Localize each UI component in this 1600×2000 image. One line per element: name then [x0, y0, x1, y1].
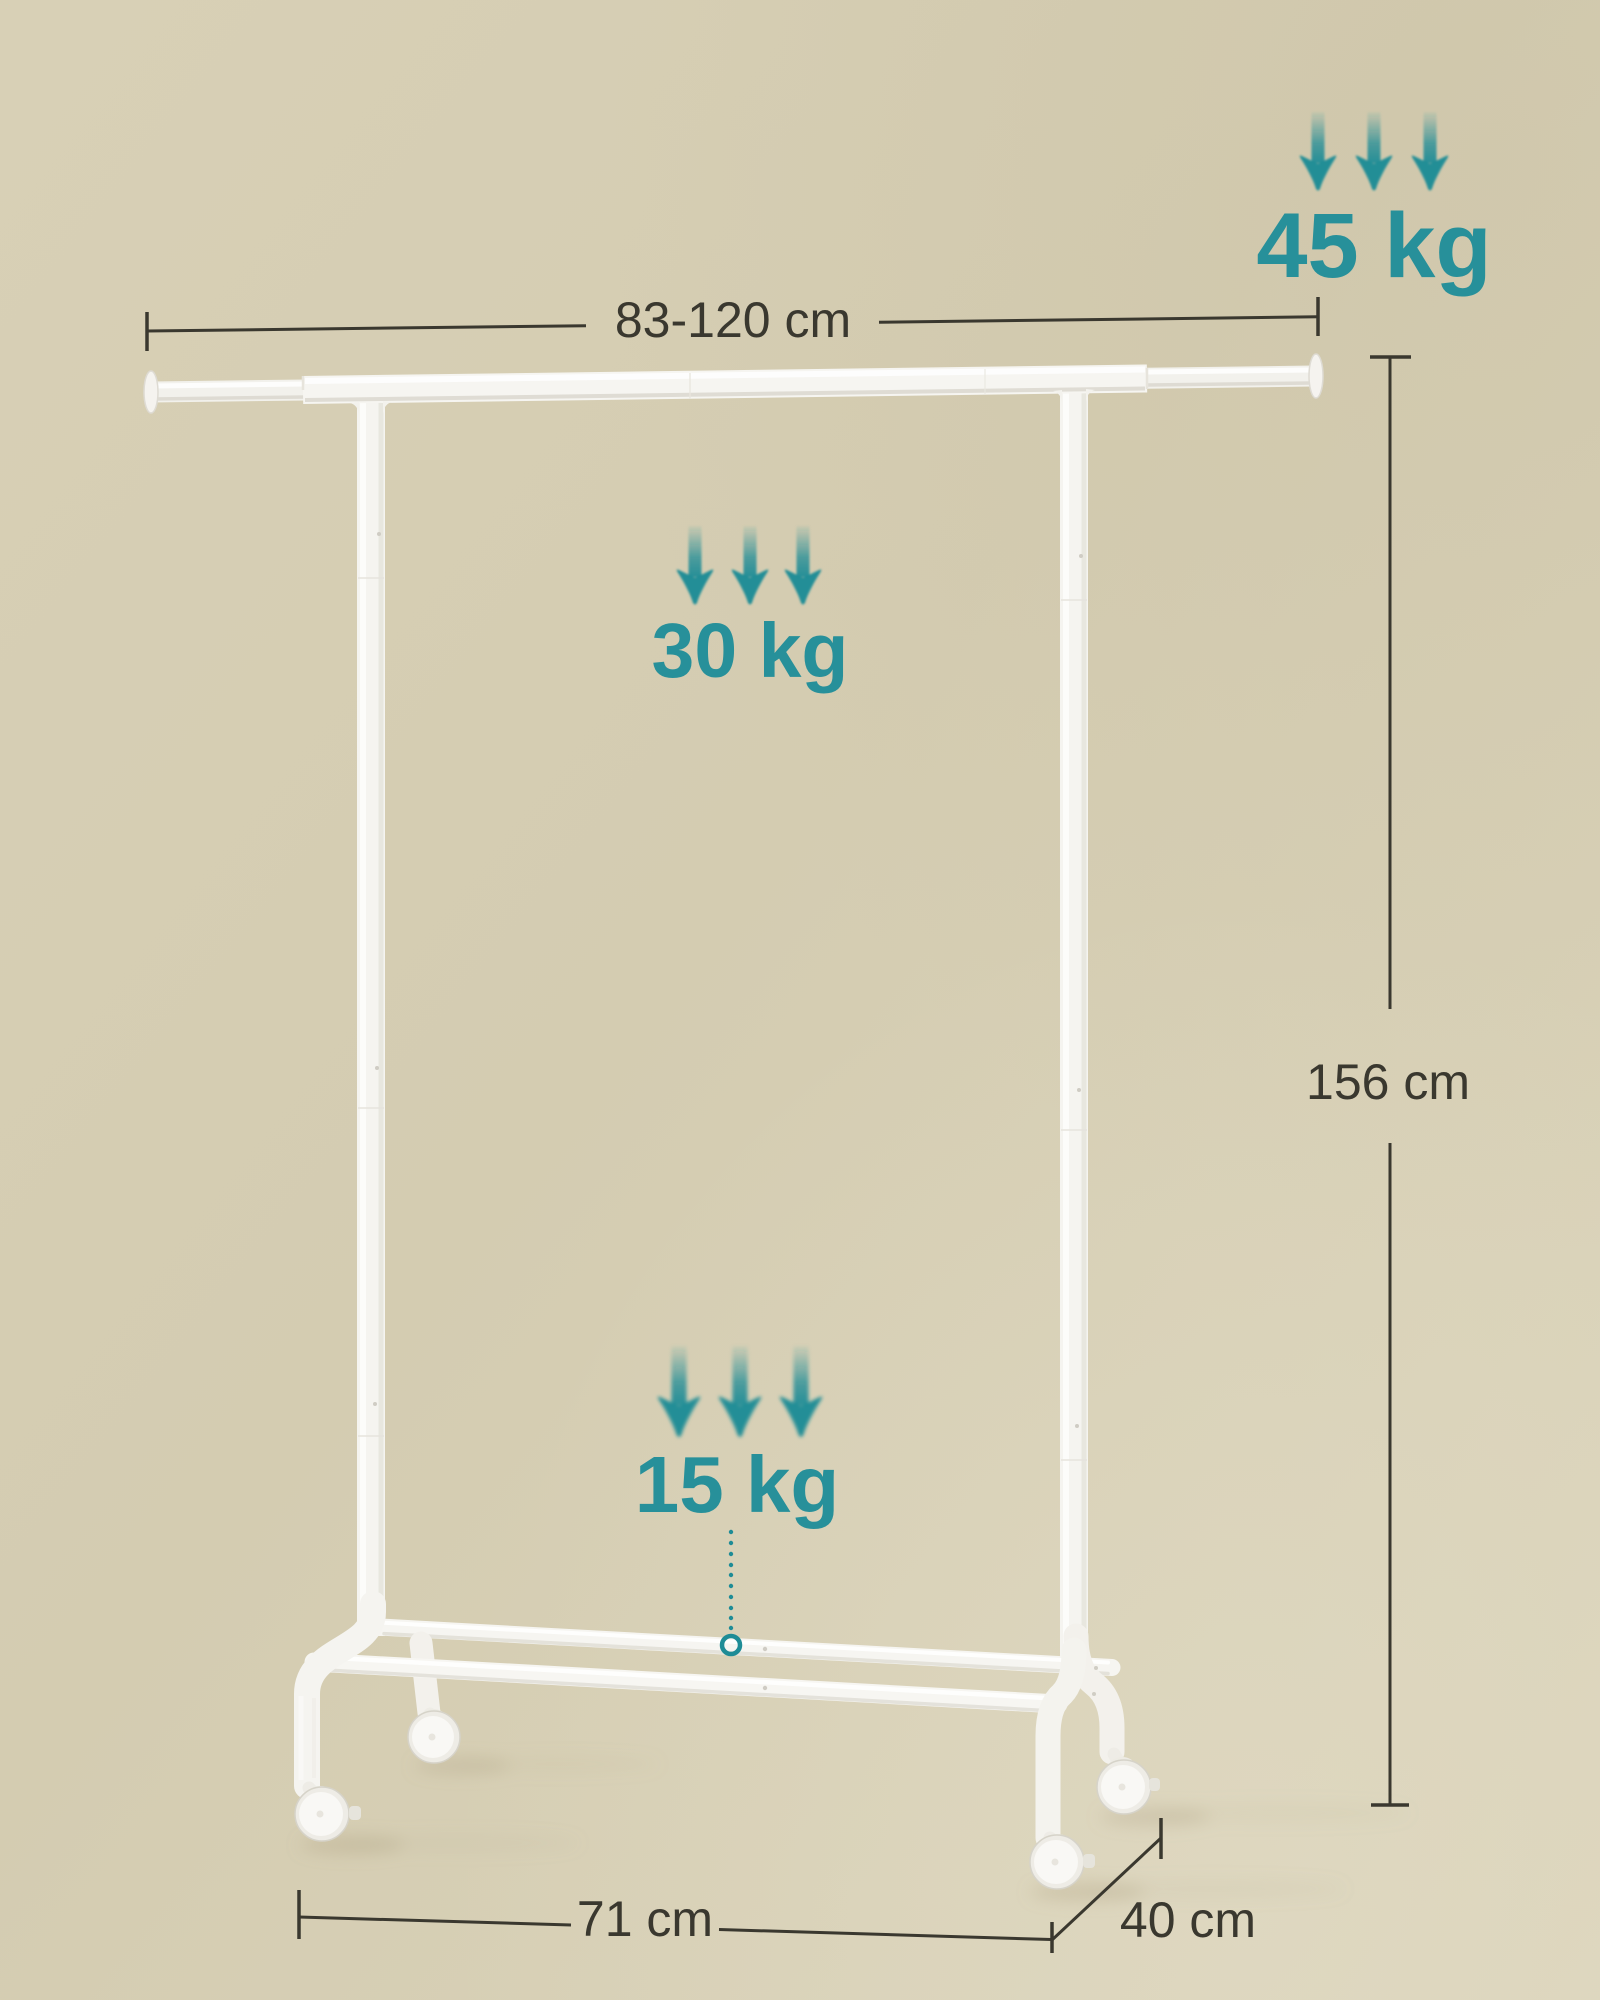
- svg-text:15 kg: 15 kg: [635, 1440, 840, 1529]
- svg-text:83-120 cm: 83-120 cm: [615, 292, 851, 348]
- svg-text:40 cm: 40 cm: [1120, 1892, 1256, 1948]
- svg-text:45 kg: 45 kg: [1256, 195, 1491, 297]
- svg-text:71 cm: 71 cm: [577, 1891, 713, 1947]
- svg-text:156 cm: 156 cm: [1306, 1054, 1470, 1110]
- svg-text:30 kg: 30 kg: [652, 608, 849, 694]
